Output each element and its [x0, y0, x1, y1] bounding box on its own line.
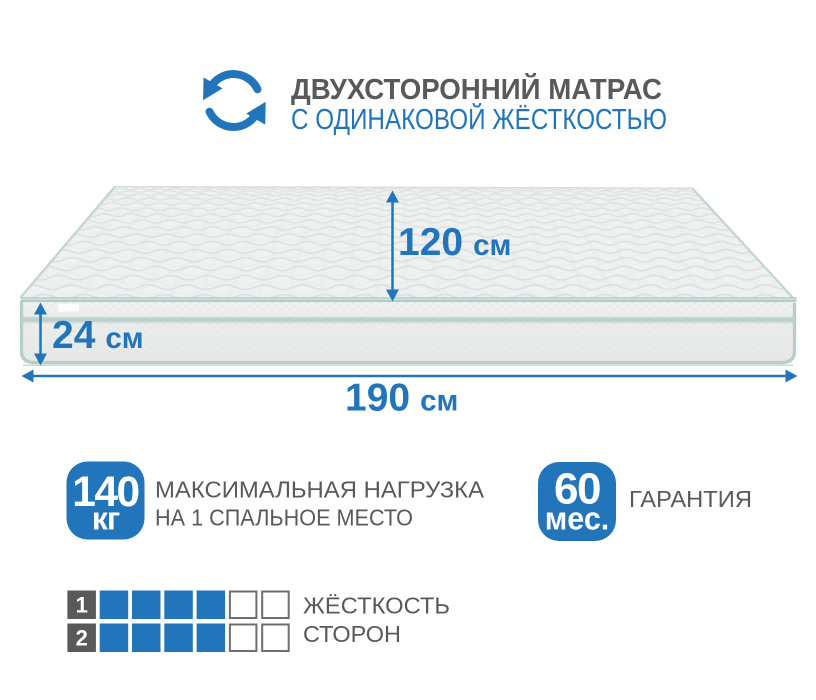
- svg-text:ДВУХСТОРОННИЙ МАТРАС: ДВУХСТОРОННИЙ МАТРАС: [291, 72, 662, 106]
- svg-text:мес.: мес.: [545, 501, 610, 537]
- svg-text:МАКСИМАЛЬНАЯ НАГРУЗКА: МАКСИМАЛЬНАЯ НАГРУЗКА: [155, 477, 484, 503]
- svg-text:НА 1 СПАЛЬНОЕ МЕСТО: НА 1 СПАЛЬНОЕ МЕСТО: [155, 505, 413, 531]
- svg-text:1: 1: [76, 593, 88, 618]
- svg-text:кг: кг: [92, 501, 120, 537]
- svg-text:ЖЁСТКОСТЬ: ЖЁСТКОСТЬ: [303, 593, 450, 619]
- svg-text:С ОДИНАКОВОЙ ЖЁСТКОСТЬЮ: С ОДИНАКОВОЙ ЖЁСТКОСТЬЮ: [291, 102, 667, 136]
- svg-text:190см: 190см: [345, 377, 458, 420]
- svg-text:2: 2: [76, 626, 88, 651]
- svg-text:ГАРАНТИЯ: ГАРАНТИЯ: [629, 486, 752, 512]
- svg-text:СТОРОН: СТОРОН: [303, 621, 401, 647]
